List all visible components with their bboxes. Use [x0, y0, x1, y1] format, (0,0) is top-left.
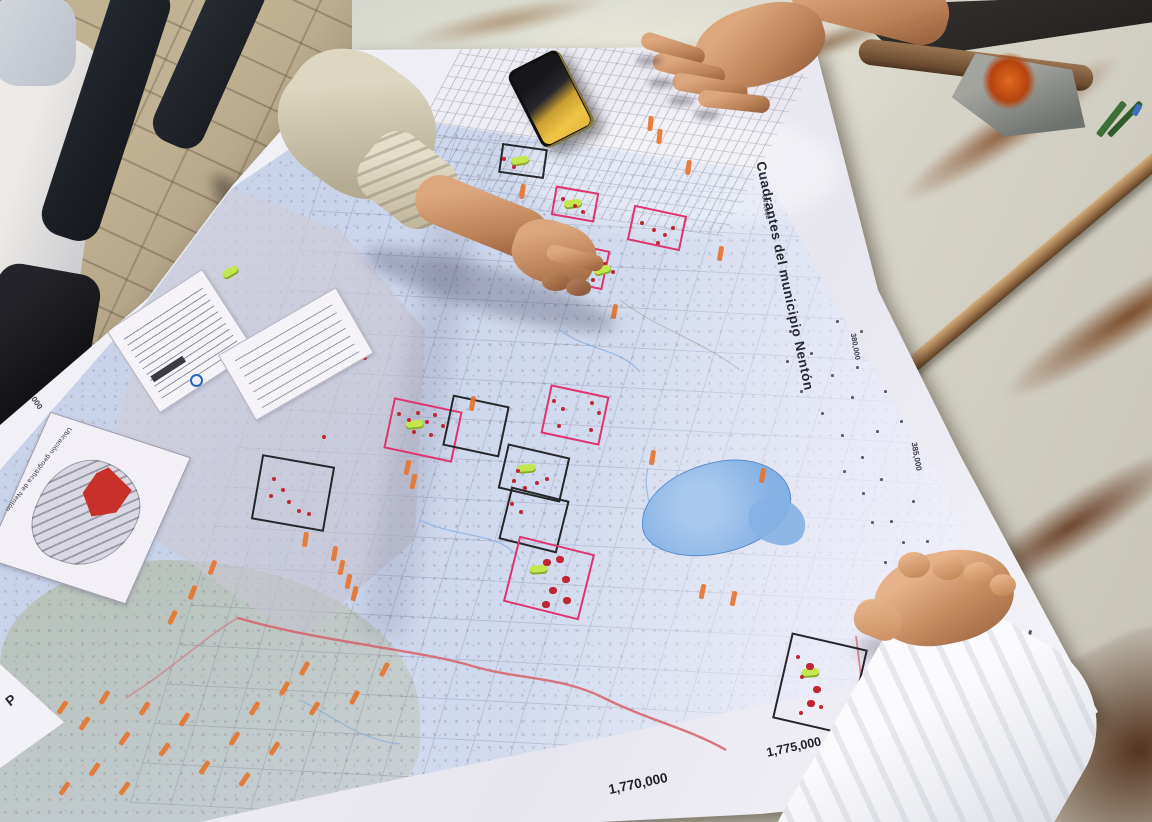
grid-dot [884, 561, 887, 564]
settlement-mark [344, 574, 352, 590]
red-dot [272, 477, 276, 481]
red-dot [502, 157, 506, 161]
red-dot [656, 241, 660, 245]
red-blob [806, 663, 814, 670]
red-dot [429, 433, 433, 437]
settlement-mark [698, 584, 706, 600]
settlement-mark [268, 741, 280, 756]
finger-shadow [636, 56, 662, 66]
red-dot [796, 655, 800, 659]
curled-finger [566, 279, 591, 296]
settlement-mark [78, 716, 91, 731]
grid-dot [831, 374, 834, 377]
grid-dot [836, 320, 839, 323]
red-dot [552, 399, 556, 403]
settlement-mark [331, 546, 339, 562]
settlement-mark [759, 468, 767, 484]
settlement-mark [611, 304, 619, 320]
settlement-mark [198, 760, 211, 775]
settlement-mark [403, 460, 411, 476]
highlight-label [530, 564, 549, 574]
red-dot [416, 411, 420, 415]
red-dot [397, 412, 401, 416]
red-dot [663, 233, 667, 237]
settlement-mark [409, 474, 417, 490]
knuckle [990, 574, 1016, 596]
highlight-label [221, 264, 240, 280]
settlement-mark [187, 585, 197, 601]
grid-dot [900, 420, 903, 423]
red-dot [573, 204, 577, 208]
grid-dot [890, 520, 893, 523]
grid-dot [876, 430, 879, 433]
red-dot [819, 705, 823, 709]
red-dot [591, 278, 595, 282]
grid-dot [926, 540, 929, 543]
quadrant-box [251, 454, 335, 532]
settlement-mark [337, 560, 345, 576]
settlement-mark [228, 731, 240, 746]
settlement-mark [178, 712, 190, 727]
red-dot [590, 401, 594, 405]
quadrant-box [540, 384, 609, 445]
settlement-mark [656, 129, 663, 144]
red-dot [652, 228, 656, 232]
red-dot [671, 226, 675, 230]
grid-dot [851, 396, 854, 399]
settlement-mark [729, 591, 737, 607]
grid-dot [810, 352, 813, 355]
settlement-mark [279, 681, 291, 696]
grid-dot [786, 360, 789, 363]
red-dot [412, 430, 416, 434]
settlement-mark [248, 701, 260, 716]
grid-dot [841, 434, 844, 437]
settlement-mark [158, 742, 171, 757]
settlement-mark [350, 586, 358, 602]
red-blob [556, 556, 564, 563]
settlement-mark [58, 781, 71, 796]
red-dot [510, 502, 514, 506]
red-dot [523, 486, 527, 490]
red-dot [611, 270, 615, 274]
settlement-mark [138, 701, 150, 716]
settlement-mark [519, 184, 526, 200]
grid-dot [880, 478, 883, 481]
red-blob [562, 576, 570, 583]
settlement-mark [649, 450, 657, 466]
red-dot [433, 413, 437, 417]
knuckle [932, 554, 964, 580]
settlement-mark [56, 700, 69, 715]
settlement-mark [379, 662, 390, 678]
grid-dot [884, 390, 887, 393]
settlement-mark [647, 116, 654, 131]
settlement-mark [308, 701, 320, 716]
red-dot [581, 210, 585, 214]
red-blob [543, 559, 551, 566]
red-blob [542, 601, 550, 608]
red-dot [407, 418, 411, 422]
red-dot [516, 469, 520, 473]
settlement-mark [167, 610, 178, 626]
red-dot [297, 509, 301, 513]
red-dot [535, 481, 539, 485]
settlement-mark [685, 160, 692, 176]
settlement-mark [118, 731, 131, 746]
finger-shadow [694, 110, 720, 120]
highlight-label [518, 464, 537, 475]
red-dot [307, 512, 311, 516]
settlement-mark [717, 246, 725, 262]
photo-scene: Cuadrantes del municipio Nentón 375,000 … [0, 0, 1152, 822]
knuckle [898, 552, 930, 578]
grid-dot [856, 366, 859, 369]
red-dot [640, 221, 644, 225]
settlement-mark [349, 690, 360, 706]
red-dot [799, 711, 803, 715]
settlement-mark [98, 690, 110, 705]
settlement-mark [118, 781, 131, 796]
red-dot [287, 500, 291, 504]
red-dot [519, 510, 523, 514]
corner-letter: P [2, 691, 19, 709]
red-dot [589, 428, 593, 432]
red-blob [813, 686, 821, 693]
quadrant-box [498, 143, 548, 179]
settlement-mark [238, 772, 251, 787]
red-dot [512, 165, 516, 169]
red-dot [561, 197, 565, 201]
settlement-mark [88, 762, 101, 777]
red-dot [800, 675, 804, 679]
red-dot [545, 477, 549, 481]
red-dot [597, 411, 601, 415]
red-dot [281, 488, 285, 492]
settlement-mark [302, 532, 309, 548]
grid-dot [912, 500, 915, 503]
finger-shadow [668, 96, 694, 106]
finger-shadow [648, 78, 674, 88]
grid-dot [902, 541, 905, 544]
grid-dot [862, 492, 865, 495]
red-dot [561, 407, 565, 411]
red-dot [269, 494, 273, 498]
grid-dot [871, 521, 874, 524]
settlement-mark [208, 560, 218, 576]
red-dot [441, 424, 445, 428]
grid-dot [860, 330, 863, 333]
grid-dot [843, 470, 846, 473]
red-dot [557, 424, 561, 428]
red-dot [512, 479, 516, 483]
organization-logo [190, 374, 203, 387]
red-blob [807, 700, 815, 707]
grid-dot [861, 456, 864, 459]
red-blob [563, 597, 571, 604]
quadrant-box [503, 536, 595, 621]
settlement-mark [299, 661, 311, 676]
red-blob [549, 587, 557, 594]
red-dot [322, 435, 326, 439]
red-dot [425, 420, 429, 424]
